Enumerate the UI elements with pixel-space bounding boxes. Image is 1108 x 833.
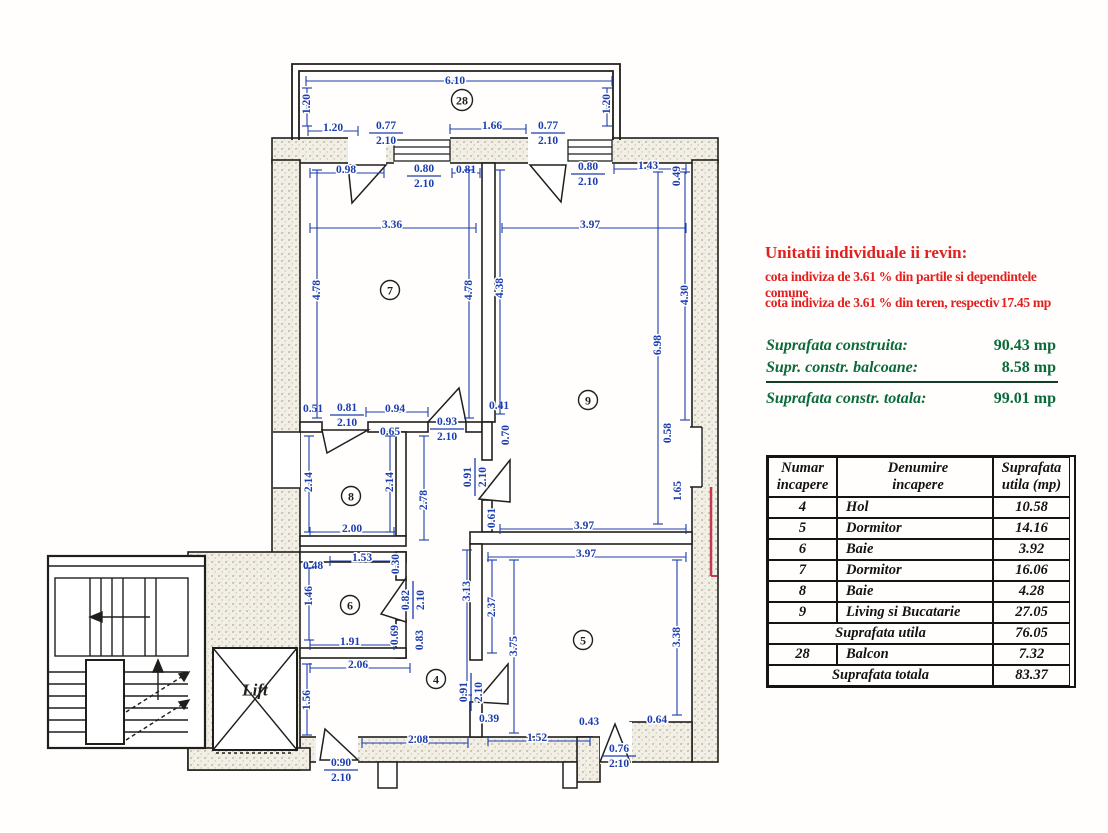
dimension-label: 3.75 [508, 636, 520, 656]
dimension-label: 2.14 [384, 472, 396, 492]
dimension-label: 2.37 [486, 597, 498, 617]
scanned-floorplan-document: 6.101.201.660.980.811.433.363.970.510.94… [0, 0, 1108, 833]
red-title: Unitatii individuale ii revin: [765, 243, 967, 263]
window-top-left [394, 140, 450, 161]
total-built-area-value: 99.01 mp [994, 390, 1056, 408]
table-row: 7Dormitor16.06 [768, 560, 1074, 581]
balcony-area-label: Supr. constr. balcoane: [766, 359, 918, 376]
room-number-cell: 8 [768, 581, 837, 602]
dimension-label: 0.48 [303, 560, 323, 572]
subtotal-value-cell: 76.05 [993, 623, 1070, 644]
total-built-area-label: Suprafata constr. totala: [766, 390, 926, 407]
dimension-label: 2.10 [473, 682, 485, 702]
table-row: Suprafata utila76.05 [768, 623, 1074, 644]
lift-shaft [213, 648, 297, 753]
dimension-label: 2.10 [437, 431, 457, 443]
dimension-label: 2.08 [408, 734, 428, 746]
dimension-label: 4.38 [494, 278, 506, 298]
room-area-table: NumarincapereDenumireincapereSuprafataut… [766, 455, 1076, 688]
table-row: 28Balcon7.32 [768, 644, 1074, 665]
dimension-label: 1.65 [672, 481, 684, 501]
dimension-label: 3.38 [671, 627, 683, 647]
dimension-label: 0.91 [458, 682, 470, 702]
dimension-label: 0.91 [462, 467, 474, 487]
dimension-label: 0.93 [437, 416, 457, 428]
floorplan-svg: 6.101.201.660.980.811.433.363.970.510.94… [0, 0, 760, 833]
dimension-label: 6.10 [445, 75, 465, 87]
table-header: Suprafatautila (mp) [993, 457, 1070, 497]
table-row: NumarincapereDenumireincapereSuprafataut… [768, 457, 1074, 497]
red-quota-line-2-label: cota indiviza de 3.61 % din teren, respe… [765, 295, 999, 310]
table-header: Denumireincapere [837, 457, 993, 497]
dimension-label: 2.14 [303, 472, 315, 492]
red-quota-line-2: cota indiviza de 3.61 % din teren, respe… [765, 295, 1075, 311]
room-number-cell: 9 [768, 602, 837, 623]
dimension-label: 0.41 [489, 400, 509, 412]
dimension-label: 0.76 [609, 743, 629, 755]
dimension-label: 1.53 [352, 552, 372, 564]
dimension-label: 0.83 [414, 630, 426, 650]
dimension-label: 2.10 [376, 135, 396, 147]
dimension-label: 0.70 [500, 425, 512, 445]
dimension-label: 0.64 [647, 714, 667, 726]
room-name-cell: Dormitor [837, 560, 993, 581]
dimension-label: 0.82 [400, 590, 412, 610]
room-name-cell: Balcon [837, 644, 993, 665]
built-area-label: Suprafata construita: [766, 337, 908, 354]
room-area-cell: 27.05 [993, 602, 1070, 623]
room-area-cell: 4.28 [993, 581, 1070, 602]
room-area-cell: 3.92 [993, 539, 1070, 560]
dimension-label: 0.80 [414, 163, 434, 175]
dimension-label: 1.91 [340, 636, 360, 648]
dimension-label: 0.58 [662, 423, 674, 443]
room-name-cell: Living si Bucatarie [837, 602, 993, 623]
dimension-label: 2.10 [609, 758, 629, 770]
dimension-label: 4.30 [679, 285, 691, 305]
room-name-cell: Baie [837, 581, 993, 602]
dimension-label: 0.30 [390, 554, 402, 574]
dimension-label: 1.20 [601, 94, 613, 114]
table-row: 4Hol10.58 [768, 497, 1074, 518]
room-number-label: 7 [387, 284, 393, 298]
built-area-value: 90.43 mp [994, 337, 1056, 355]
dimension-label: 0.51 [303, 403, 323, 415]
dimension-label: 0.98 [336, 164, 356, 176]
dimension-label: 3.13 [461, 581, 473, 601]
dimension-label: 1.20 [323, 122, 343, 134]
dimension-label: 2.10 [331, 772, 351, 784]
dimension-label: 2.10 [415, 590, 427, 610]
dimension-label: 0.77 [376, 120, 396, 132]
dimension-label: 0.80 [578, 161, 598, 173]
dimension-label: 0.39 [479, 713, 499, 725]
red-quota-line-2-value: 17.45 mp [1001, 295, 1051, 311]
room-area-cell: 10.58 [993, 497, 1070, 518]
dimension-label: 3.97 [574, 520, 594, 532]
dimension-label: 0.61 [486, 508, 498, 528]
room-number-label: 5 [580, 634, 586, 648]
dimension-label: 2.10 [337, 417, 357, 429]
dimension-label: 2.10 [477, 467, 489, 487]
dimension-label: 0.90 [331, 757, 351, 769]
dimension-label: 2.10 [538, 135, 558, 147]
green-separator [766, 381, 1058, 383]
dimension-label: 1.66 [482, 120, 502, 132]
lift-label: Lift [241, 681, 269, 700]
dimension-label: 4.78 [463, 280, 475, 300]
table-row: 5Dormitor14.16 [768, 518, 1074, 539]
room-number-label: 4 [433, 673, 439, 687]
table-header: Numarincapere [768, 457, 837, 497]
room-name-cell: Hol [837, 497, 993, 518]
dimension-label: 1.20 [301, 94, 313, 114]
dimension-label: 0.43 [579, 716, 599, 728]
dimension-label: 2.10 [414, 178, 434, 190]
table-row: 8Baie4.28 [768, 581, 1074, 602]
balcony-area-value: 8.58 mp [1002, 359, 1056, 377]
total-value-cell: 83.37 [993, 665, 1070, 686]
room-number-label: 8 [348, 490, 354, 504]
dimension-label: 0.81 [337, 402, 357, 414]
subtotal-label-cell: Suprafata utila [768, 623, 993, 644]
dimension-label: 1.56 [301, 690, 313, 710]
dimension-label: 1.43 [638, 160, 658, 172]
dimension-label: 2.78 [418, 490, 430, 510]
dimension-label: 0.77 [538, 120, 558, 132]
dimension-label: 0.94 [385, 403, 405, 415]
table-row: 6Baie3.92 [768, 539, 1074, 560]
dimension-label: 3.97 [576, 548, 596, 560]
staircase [48, 556, 205, 748]
dimension-label: 3.97 [580, 219, 600, 231]
room-number-cell: 4 [768, 497, 837, 518]
dimension-label: 2.00 [342, 523, 362, 535]
room-area-cell: 16.06 [993, 560, 1070, 581]
dimension-label: 6.98 [652, 335, 664, 355]
bottom-wall-tabs [378, 762, 577, 788]
partition-walls [300, 163, 692, 737]
dimension-label: 1.46 [303, 586, 315, 606]
dimension-label: 1.52 [527, 732, 547, 744]
room-number-label: 28 [456, 94, 468, 108]
room-number-label: 9 [585, 394, 591, 408]
room-name-cell: Baie [837, 539, 993, 560]
dimension-label: 4.78 [311, 280, 323, 300]
dimension-label: 2.06 [348, 659, 368, 671]
dimension-label: 0.49 [671, 166, 683, 186]
table-row: 9Living si Bucatarie27.05 [768, 602, 1074, 623]
dimension-label: 2.10 [578, 176, 598, 188]
room-name-cell: Dormitor [837, 518, 993, 539]
room-number-label: 6 [347, 599, 353, 613]
room-area-cell: 14.16 [993, 518, 1070, 539]
window-top-right [568, 140, 612, 161]
total-built-area-row: Suprafata constr. totala: 99.01 mp [766, 390, 1056, 408]
room-area-cell: 7.32 [993, 644, 1070, 665]
room-number-cell: 5 [768, 518, 837, 539]
room-number-cell: 6 [768, 539, 837, 560]
total-label-cell: Suprafata totala [768, 665, 993, 686]
dimension-label: 0.69 [389, 625, 401, 645]
room-number-cell: 28 [768, 644, 837, 665]
table-row: Suprafata totala83.37 [768, 665, 1074, 686]
dimension-label: 3.36 [382, 219, 402, 231]
balcony-area-row: Supr. constr. balcoane: 8.58 mp [766, 359, 1056, 377]
built-area-row: Suprafata construita: 90.43 mp [766, 337, 1056, 355]
room-number-cell: 7 [768, 560, 837, 581]
